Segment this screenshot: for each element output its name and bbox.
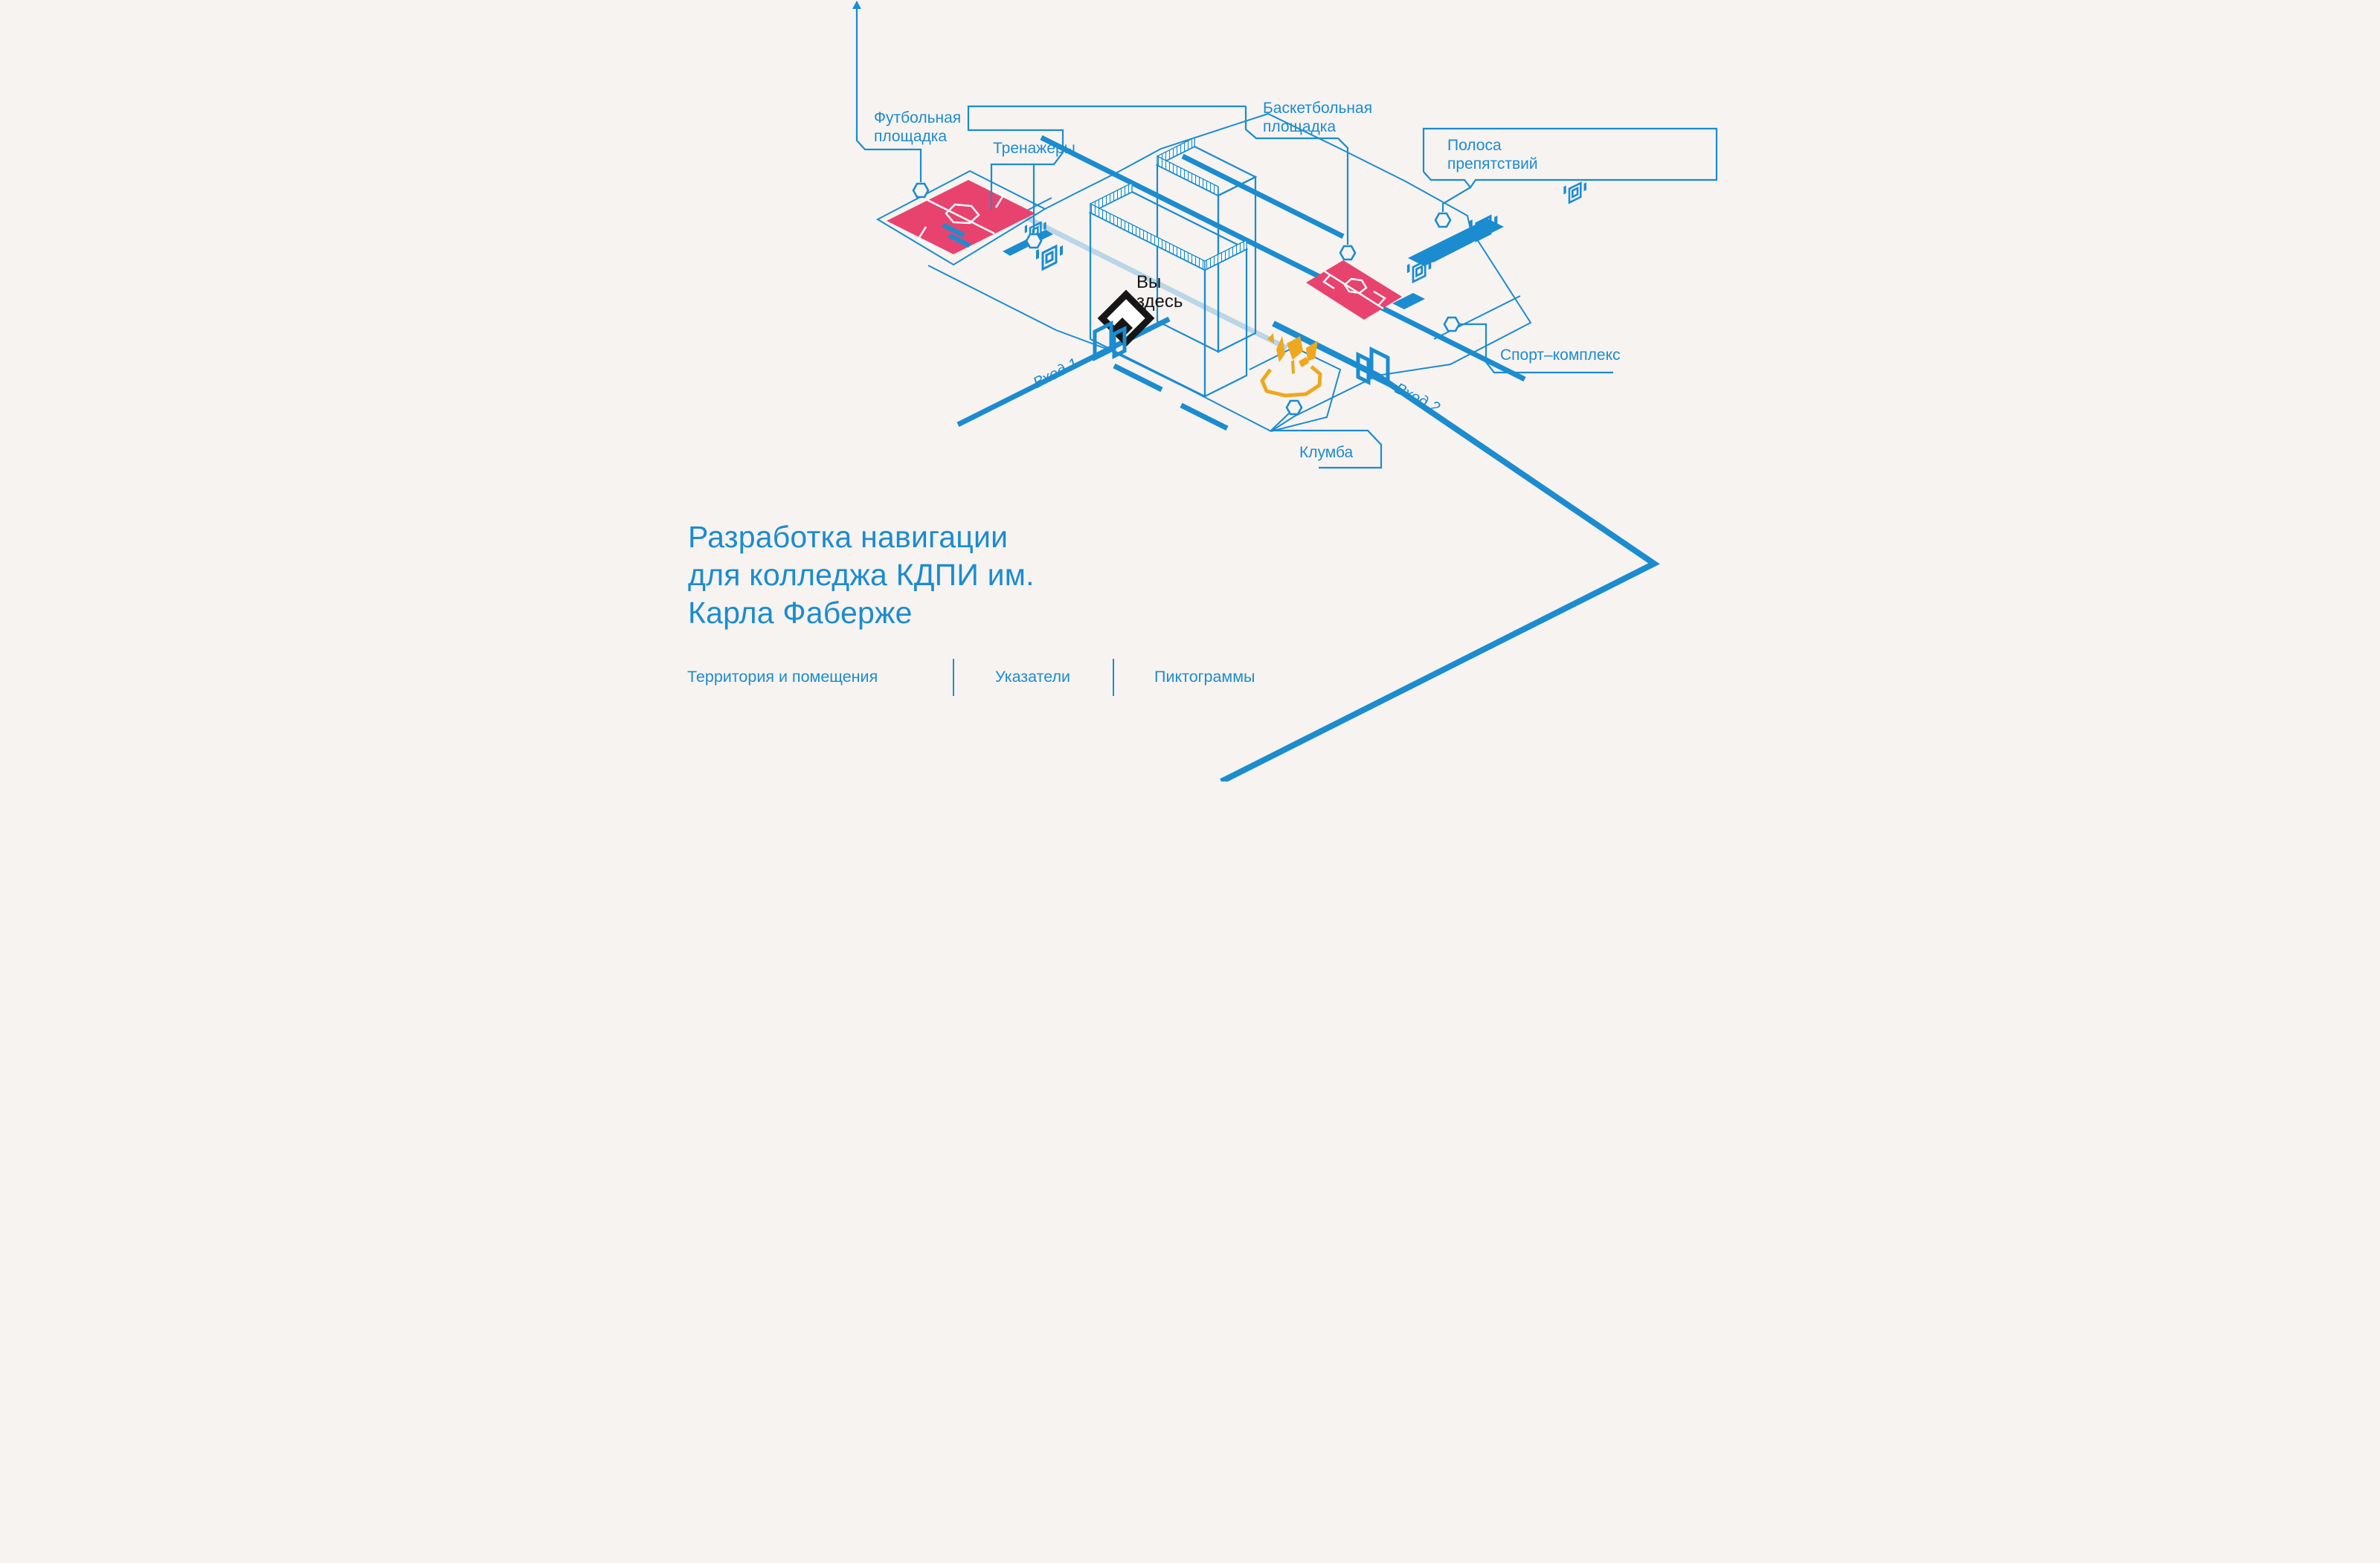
parapet-hatch-band <box>1157 156 1218 196</box>
path-stub <box>1114 366 1162 390</box>
tab-separator <box>1113 659 1114 696</box>
hexagon-marker-icon <box>1340 246 1355 260</box>
page-title-line3: Карла Фаберже <box>688 594 1035 632</box>
sport-label: Спорт–комплекс <box>1500 347 1621 364</box>
entrance-2-road-arrow <box>1221 323 1654 781</box>
entrance-1-label: Вход 1 <box>1030 355 1081 392</box>
football-leader-line <box>857 1 921 182</box>
page-title: Разработка навигации для колледжа КДПИ и… <box>688 518 1035 632</box>
football-label-line1: Футбольная <box>874 109 961 126</box>
flower-petal <box>1276 336 1285 362</box>
page-title-line2: для колледжа КДПИ им. <box>688 556 1035 594</box>
tab-signs[interactable]: Указатели <box>995 668 1070 686</box>
fitness-tower-icon <box>1036 245 1063 269</box>
page-title-line1: Разработка навигации <box>688 518 1035 556</box>
flowerbed-plot-outline <box>1249 347 1340 431</box>
obstacle-leader-line <box>1443 187 1470 212</box>
flower-petal <box>1287 336 1303 360</box>
fitness-tower-icon <box>1563 182 1586 202</box>
poster-page: Вы здесь Футбольная площадка Тренажёры <box>595 0 1785 781</box>
hexagon-marker-icon <box>1444 318 1459 331</box>
hexagon-marker-icon <box>913 184 928 197</box>
parapet-hatch-band <box>1205 240 1247 270</box>
hexagon-marker-icon <box>1287 401 1302 414</box>
section-tabs: Территория и помещения Указатели Пиктогр… <box>595 657 1785 702</box>
tab-pictograms[interactable]: Пиктограммы <box>1154 668 1255 686</box>
obstacle-label-line2: препятствий <box>1447 155 1538 173</box>
gym-label: Тренажёры <box>993 140 1075 157</box>
tab-separator <box>953 659 954 696</box>
obstacle-course <box>1392 219 1504 309</box>
basketball-label-line2: площадка <box>1263 118 1336 135</box>
path-stub <box>1181 405 1227 428</box>
football-label-line2: площадка <box>874 128 947 145</box>
sport-complex-line <box>1434 296 1520 339</box>
flowerbed-pot <box>1262 367 1320 396</box>
tab-territory[interactable]: Территория и помещения <box>687 668 878 686</box>
boundary-south <box>928 265 1271 431</box>
you-are-here-label-line2: здесь <box>1136 291 1183 312</box>
boundary-east <box>1271 229 1531 431</box>
basketball-label-line1: Баскетбольная <box>1263 100 1372 117</box>
hexagon-marker-icon <box>1435 213 1450 227</box>
entrance-2-label: Вход 2 <box>1392 380 1443 417</box>
flowerbed-label: Клумба <box>1299 444 1353 461</box>
obstacle-label-line1: Полоса <box>1447 137 1502 154</box>
hexagon-marker-icon <box>1026 234 1041 248</box>
you-are-here-label-line1: Вы <box>1136 272 1161 292</box>
road-to-courts <box>1183 156 1343 236</box>
gym-callout-outline <box>968 106 1246 210</box>
flower-stem <box>1291 360 1295 374</box>
